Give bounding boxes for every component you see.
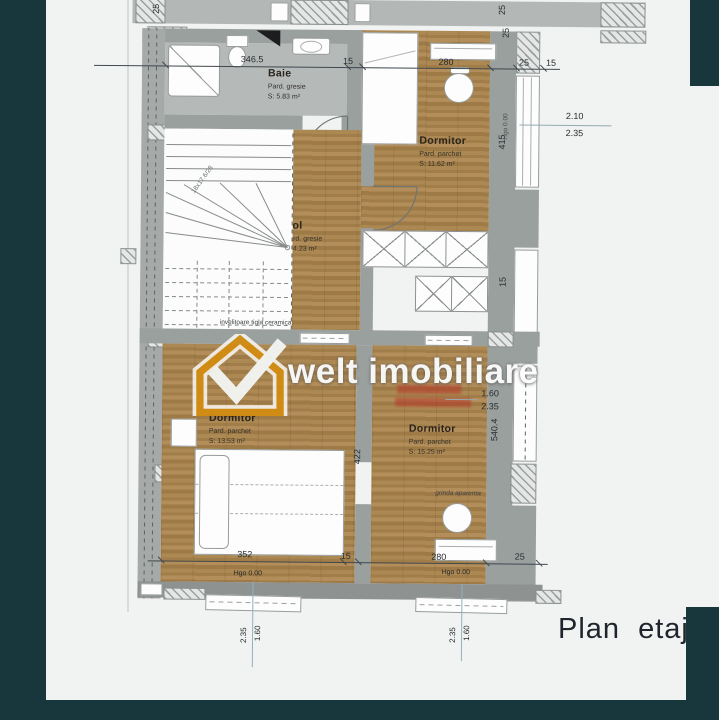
nightstand xyxy=(171,419,197,447)
room-name: Hol xyxy=(285,220,355,233)
level-mark-hgo: Hgo 0.00 xyxy=(503,106,510,140)
height-2.35: 2.35 xyxy=(561,129,587,138)
door-arc-dorm-ne xyxy=(369,182,421,234)
wardrobe xyxy=(362,230,488,268)
window xyxy=(354,3,370,22)
room-floor-type: Pard. parchet xyxy=(419,150,503,158)
dimension-15: 15 xyxy=(340,57,356,66)
window xyxy=(270,2,288,21)
height-2.35: 2.35 xyxy=(240,624,248,646)
watermark: welt imobiliare xyxy=(190,332,550,416)
hatch-pier xyxy=(600,30,646,43)
room-area: S: 15.25 m² xyxy=(409,449,501,457)
hatch-pier xyxy=(510,463,536,503)
room-floor-type: Pard. gresie xyxy=(285,235,355,243)
height-2.35: 2.35 xyxy=(449,624,457,646)
hatch-pier xyxy=(163,587,205,599)
room-area: S: 4.23 m² xyxy=(284,246,354,254)
room-floor-type: Pard. parchet xyxy=(409,438,501,446)
wall-bedroom-divider xyxy=(355,504,372,583)
level-mark-hgo: Hgo 0.00 xyxy=(442,569,470,576)
dimension-422: 422 xyxy=(353,444,362,470)
roof-band xyxy=(132,0,645,28)
dimension-15: 15 xyxy=(544,59,558,68)
floor-plan-photo: Baie Pard. gresie S: 5.83 m² Dormitor Pa… xyxy=(0,0,719,720)
frame-bottom xyxy=(0,700,719,720)
sill xyxy=(140,583,162,595)
bed-pillow xyxy=(199,455,230,549)
shower-tray xyxy=(168,44,220,96)
watermark-text: welt imobiliare xyxy=(288,352,539,392)
plan-title: Plan etaj xyxy=(558,613,689,646)
frame-top-right xyxy=(690,0,719,86)
wall-baie-bottom xyxy=(164,114,302,129)
dimension-15-vert: 15 xyxy=(499,274,508,290)
bed xyxy=(361,32,418,144)
chair-icon xyxy=(442,503,472,533)
room-floor-type: Pard. gresie xyxy=(268,83,348,91)
room-label-dormitor-ne: Dormitor Pard. parchet S: 11.62 m² xyxy=(419,135,503,169)
roof-annotation: invelitoare tigla ceramica xyxy=(220,320,292,327)
hatch-pier xyxy=(120,248,136,264)
height-1.60: 1.60 xyxy=(254,622,262,644)
height-1.60: 1.60 xyxy=(463,622,471,644)
dimension-15: 15 xyxy=(338,552,354,561)
dimension-25-wall: 25 xyxy=(498,2,507,18)
room-label-dormitor-sw: Dormitor Pard. parchet S: 13.53 m² xyxy=(209,412,301,446)
beam-annotation: grinda aparenta xyxy=(435,491,481,498)
dimension-540.4: 540.4 xyxy=(490,412,499,448)
sink-basin xyxy=(300,41,322,53)
hatch-pier xyxy=(535,590,561,604)
dimension-25-wall: 25 xyxy=(152,1,161,17)
frame-bottom-right xyxy=(686,607,719,720)
level-mark-hgo: Hgo 0.00 xyxy=(234,570,262,577)
hatch-pier xyxy=(600,2,645,27)
room-floor-type: Pard. parchet xyxy=(209,427,301,435)
room-area: S: 13.53 m² xyxy=(209,438,301,446)
room-name: Dormitor xyxy=(409,423,501,436)
dimension-280: 280 xyxy=(432,58,460,67)
room-label-baie: Baie Pard. gresie S: 5.83 m² xyxy=(268,67,348,101)
room-name: Baie xyxy=(268,67,348,80)
hatch-pier xyxy=(290,0,348,25)
house-check-logo-icon xyxy=(192,334,288,416)
room-area: S: 5.83 m² xyxy=(268,93,348,101)
stairs xyxy=(163,128,294,331)
dimension-352: 352 xyxy=(228,550,262,559)
dimension-25-wall: 25 xyxy=(502,25,511,41)
dimension-25: 25 xyxy=(516,59,532,68)
wardrobe-cell xyxy=(416,277,452,311)
window xyxy=(515,76,540,188)
wardrobe-cell xyxy=(405,232,447,267)
room-area: S: 11.62 m² xyxy=(419,161,503,169)
dimension-25: 25 xyxy=(512,553,528,562)
wardrobe-cell xyxy=(447,232,488,267)
frame-left xyxy=(0,0,46,720)
dimension-280: 280 xyxy=(424,553,454,562)
wardrobe xyxy=(415,276,488,313)
wardrobe-cell xyxy=(363,231,405,266)
wall-segment xyxy=(512,190,539,248)
dimension-346.5: 346.5 xyxy=(230,55,274,64)
room-label-dormitor-se: Dormitor Pard. parchet S: 15.25 m² xyxy=(409,423,501,457)
wardrobe-cell xyxy=(452,277,487,311)
window xyxy=(514,250,539,334)
section-marker xyxy=(256,30,280,46)
chair-icon xyxy=(444,73,474,103)
height-2.10: 2.10 xyxy=(562,112,588,121)
room-name: Dormitor xyxy=(419,135,503,148)
room-label-hol: Hol Pard. gresie S: 4.23 m² xyxy=(284,220,354,254)
